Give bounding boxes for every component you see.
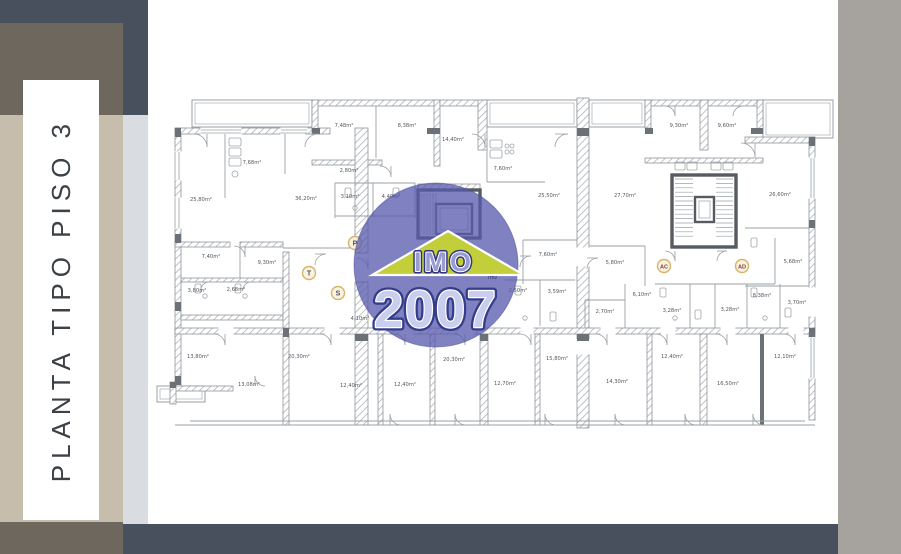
room-area-label: 36,20m²	[295, 196, 317, 202]
room-area-label: 9,30m²	[670, 123, 689, 129]
room-area-label: 5,80m²	[606, 260, 625, 266]
room-area-label: 12,40m²	[394, 382, 416, 388]
room-area-label: 13,80m²	[187, 354, 209, 360]
room-area-label: 2,80m²	[340, 168, 359, 174]
floor-plan-page: PLANTA TIPO PISO 3 7,68m²25,80m²36,20m²7…	[0, 0, 901, 554]
room-area-label: 3,59m²	[548, 289, 567, 295]
room-area-label: 25,80m²	[190, 197, 212, 203]
room-area-label: 20,30m²	[288, 354, 310, 360]
svg-text:T: T	[307, 270, 312, 277]
svg-text:S: S	[336, 290, 341, 297]
room-area-label: 8,38m²	[398, 123, 417, 129]
room-area-label: 7,68m²	[243, 160, 262, 166]
room-area-label: 13,08m²	[238, 382, 260, 388]
frame-taupe-bottom-block	[0, 522, 123, 554]
room-area-label: 12,10m²	[774, 354, 796, 360]
unit-badge-ac: AC	[658, 260, 671, 273]
room-area-label: 2,68m²	[227, 287, 246, 293]
room-area-label: 14,30m²	[606, 379, 628, 385]
room-area-label: 7,48m²	[335, 123, 354, 129]
room-area-label: 20,30m²	[443, 357, 465, 363]
unit-badge-ad: AD	[736, 260, 749, 273]
room-area-label: 7,40m²	[202, 254, 221, 260]
frame-bottom-bar	[123, 524, 838, 554]
room-area-label: 3,28m²	[721, 307, 740, 313]
svg-text:AD: AD	[738, 264, 746, 270]
room-area-label: 8,38m²	[753, 293, 772, 299]
room-area-label: 3,70m²	[788, 300, 807, 306]
frame-slate-column	[123, 0, 148, 115]
logo-imo-text: IMO	[414, 247, 474, 277]
room-area-label: 9,60m²	[718, 123, 737, 129]
room-area-label: 3,28m²	[663, 308, 682, 314]
room-area-label: 15,80m²	[546, 356, 568, 362]
room-area-label: 16,50m²	[717, 381, 739, 387]
page-title: PLANTA TIPO PISO 3	[46, 118, 77, 482]
room-area-label: 12,40m²	[661, 354, 683, 360]
frame-lightgray-column	[123, 115, 148, 524]
room-area-label: 27,70m²	[614, 193, 636, 199]
room-area-label: 3,80m²	[188, 288, 207, 294]
unit-badge-t: T	[303, 267, 316, 280]
room-area-label: 12,40m²	[340, 383, 362, 389]
room-area-label: 7,60m²	[539, 252, 558, 258]
room-area-label: 2,70m²	[596, 309, 615, 315]
title-banner: PLANTA TIPO PISO 3	[23, 80, 99, 520]
room-area-label: 6,10m²	[633, 292, 652, 298]
frame-right-column	[838, 0, 901, 554]
imo-logo: IMO IMO rmv 2007 2007	[350, 179, 522, 351]
logo-year-text: 2007	[374, 281, 498, 339]
unit-badge-s: S	[332, 287, 345, 300]
room-area-label: 25,50m²	[538, 193, 560, 199]
room-area-label: 14,40m²	[442, 137, 464, 143]
room-area-label: 12,70m²	[494, 381, 516, 387]
room-area-label: 5,68m²	[784, 259, 803, 265]
svg-text:AC: AC	[660, 264, 668, 270]
room-area-label: 9,30m²	[258, 260, 277, 266]
room-area-label: 7,60m²	[494, 166, 513, 172]
room-area-label: 26,60m²	[769, 192, 791, 198]
